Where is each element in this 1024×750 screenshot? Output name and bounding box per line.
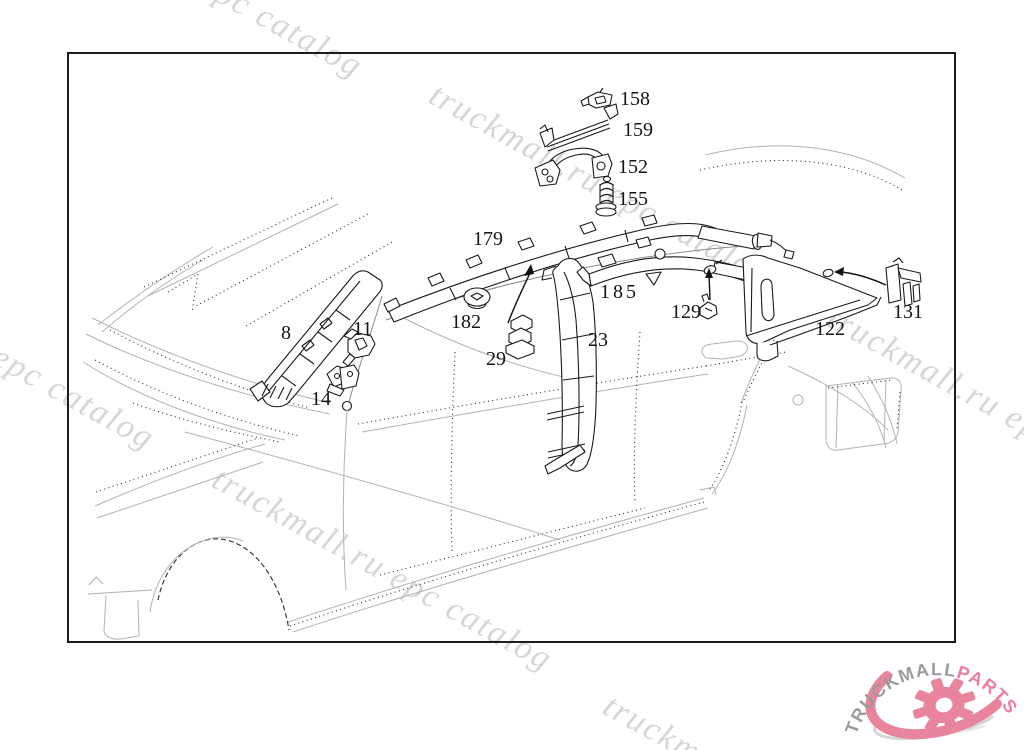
part-drawings bbox=[250, 88, 921, 474]
part-159-drawing bbox=[540, 104, 618, 151]
part-23-drawing bbox=[542, 259, 596, 474]
page: truckmall.ru epc catalog truckmall.ru ep… bbox=[0, 0, 1024, 750]
part-label-129: 129 bbox=[671, 301, 701, 324]
part-label-152: 152 bbox=[618, 156, 648, 179]
part-label-158: 158 bbox=[620, 88, 650, 111]
part-label-131: 131 bbox=[893, 301, 923, 324]
part-label-23: 23 bbox=[588, 329, 608, 352]
arrow-131-to-clip bbox=[841, 272, 886, 285]
part-label-8: 8 bbox=[281, 322, 291, 345]
part-182-drawing bbox=[464, 288, 490, 309]
part-label-159: 159 bbox=[623, 119, 653, 142]
car-body-outline bbox=[83, 146, 905, 639]
part-label-14: 14 bbox=[311, 388, 331, 411]
part-158-drawing bbox=[581, 88, 612, 108]
parts-line-drawing bbox=[0, 0, 1024, 750]
truckmall-parts-logo: TRUCKMALLPARTS bbox=[843, 644, 1024, 750]
part-155-drawing bbox=[596, 177, 616, 217]
part-122-drawing bbox=[743, 255, 881, 361]
part-label-179: 179 bbox=[473, 228, 503, 251]
part-label-11: 11 bbox=[353, 318, 372, 341]
part-14-drawing bbox=[327, 365, 359, 396]
part-label-182: 182 bbox=[451, 311, 481, 334]
part-29-drawing bbox=[506, 315, 534, 359]
part-label-155: 155 bbox=[618, 188, 648, 211]
part-131-drawing bbox=[886, 258, 921, 306]
part-label-29: 29 bbox=[486, 348, 506, 371]
part-label-185: 185 bbox=[600, 281, 639, 304]
part-152-drawing bbox=[535, 148, 612, 186]
part-label-122: 122 bbox=[815, 318, 845, 341]
